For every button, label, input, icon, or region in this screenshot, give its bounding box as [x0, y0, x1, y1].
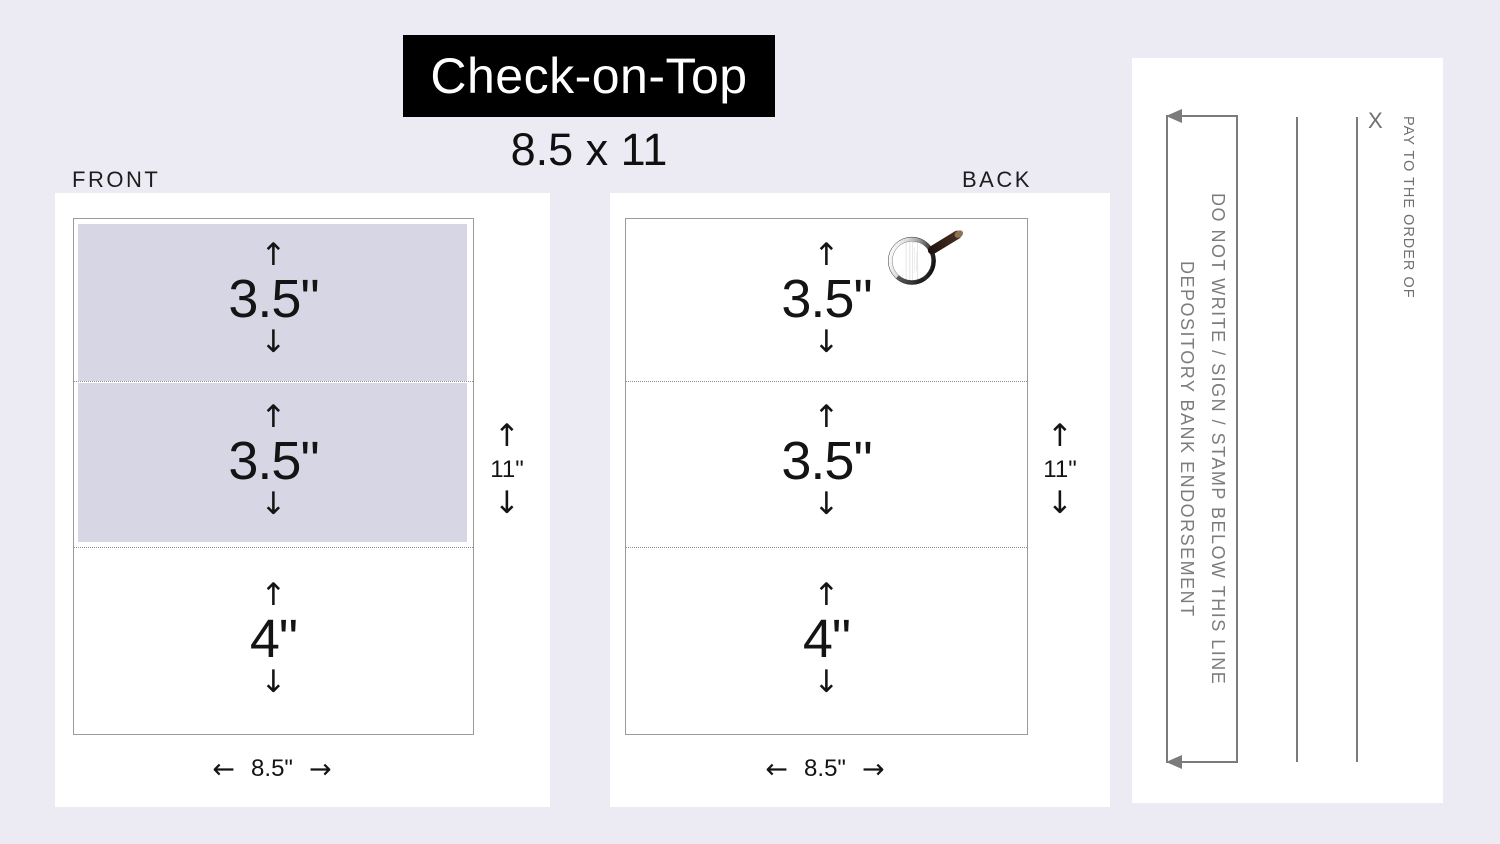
perforation-line	[74, 381, 473, 382]
front-section-2-dimension: ↑ 3.5" ↓	[74, 405, 473, 517]
up-arrow-icon: ↑	[261, 405, 287, 430]
down-arrow-icon: ↓	[494, 491, 520, 516]
section-height-value: 3.5"	[228, 272, 318, 326]
front-panel: ↑ 3.5" ↓ ↑ 3.5" ↓ ↑ 4" ↓	[55, 193, 550, 807]
back-section-2-dimension: ↑ 3.5" ↓	[626, 405, 1027, 517]
do-not-write-text: DO NOT WRITE / SIGN / STAMP BELOW THIS L…	[1207, 193, 1228, 685]
back-section-3-dimension: ↑ 4" ↓	[626, 583, 1027, 695]
down-arrow-icon: ↓	[261, 670, 287, 695]
right-arrow-icon: →	[862, 756, 885, 783]
page-width-value: 8.5"	[804, 755, 846, 783]
left-arrow-icon: ←	[212, 756, 235, 783]
up-arrow-icon: ↑	[261, 583, 287, 608]
down-arrow-icon: ↓	[814, 330, 840, 355]
signature-x-mark: X	[1368, 110, 1383, 132]
left-arrow-icon: ←	[765, 756, 788, 783]
front-side-label: FRONT	[72, 167, 160, 193]
perforation-line	[626, 547, 1027, 548]
section-height-value: 4"	[250, 612, 297, 666]
sheet-size-label: 8.5 x 11	[403, 124, 775, 176]
up-arrow-icon: ↑	[814, 583, 840, 608]
down-arrow-icon: ↓	[261, 492, 287, 517]
front-page-width-dimension: ← 8.5" →	[172, 753, 372, 785]
section-height-value: 3.5"	[781, 434, 871, 488]
up-arrow-icon: ↑	[814, 243, 840, 268]
front-section-3-dimension: ↑ 4" ↓	[74, 583, 473, 695]
section-height-value: 4"	[803, 612, 850, 666]
check-on-top-size-diagram: Check-on-Top 8.5 x 11 FRONT BACK ↑ 3.5" …	[0, 0, 1500, 844]
down-arrow-icon: ↓	[814, 492, 840, 517]
left-arrow-icon	[1166, 109, 1182, 123]
front-page-height-dimension: ↑ 11" ↓	[484, 424, 530, 516]
back-page-height-dimension: ↑ 11" ↓	[1037, 424, 1083, 516]
magnifier-handle	[932, 235, 957, 250]
right-arrow-icon: →	[309, 756, 332, 783]
section-height-value: 3.5"	[781, 272, 871, 326]
pay-to-order-text: PAY TO THE ORDER OF	[1400, 116, 1416, 299]
down-arrow-icon: ↓	[814, 670, 840, 695]
up-arrow-icon: ↑	[1047, 424, 1073, 449]
back-page-width-dimension: ← 8.5" →	[725, 753, 925, 785]
page-width-value: 8.5"	[251, 755, 293, 783]
page-height-value: 11"	[1043, 456, 1076, 484]
endorsement-rule-line	[1296, 117, 1298, 762]
signature-rule-line	[1356, 117, 1358, 762]
front-section-1-dimension: ↑ 3.5" ↓	[74, 243, 473, 355]
product-title-banner: Check-on-Top	[403, 35, 775, 117]
product-title: Check-on-Top	[430, 47, 747, 105]
up-arrow-icon: ↑	[261, 243, 287, 268]
up-arrow-icon: ↑	[814, 405, 840, 430]
page-height-value: 11"	[490, 456, 523, 484]
section-height-value: 3.5"	[228, 434, 318, 488]
up-arrow-icon: ↑	[494, 424, 520, 449]
perforation-line	[74, 547, 473, 548]
down-arrow-icon: ↓	[261, 330, 287, 355]
magnifier: DO NOT WRITE / SIGN / STAMP BELOW THIS L…	[880, 150, 1210, 400]
front-sheet: ↑ 3.5" ↓ ↑ 3.5" ↓ ↑ 4" ↓	[73, 218, 474, 735]
left-arrow-icon	[1166, 755, 1182, 769]
down-arrow-icon: ↓	[1047, 491, 1073, 516]
